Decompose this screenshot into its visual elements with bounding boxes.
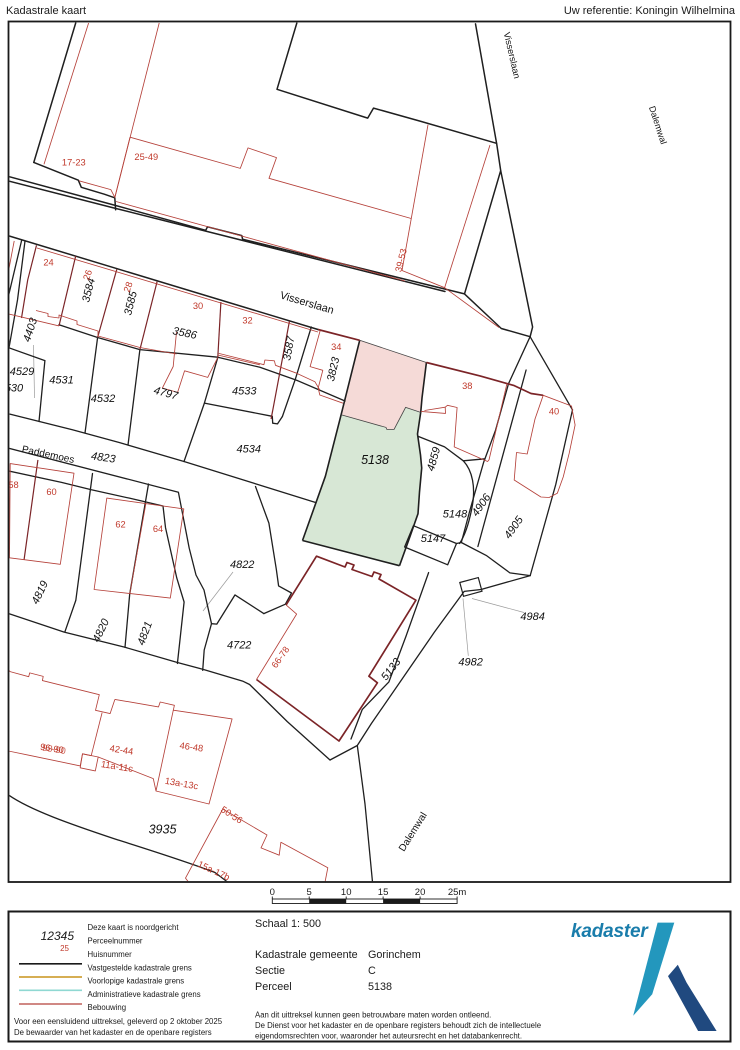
svg-text:34: 34 bbox=[331, 342, 341, 352]
svg-text:Gorinchem: Gorinchem bbox=[368, 949, 421, 961]
svg-text:5138: 5138 bbox=[368, 981, 392, 993]
svg-text:38: 38 bbox=[462, 381, 472, 391]
svg-text:25: 25 bbox=[60, 944, 69, 953]
svg-text:4722: 4722 bbox=[227, 640, 251, 652]
svg-text:Bebouwing: Bebouwing bbox=[88, 1003, 127, 1012]
svg-text:62: 62 bbox=[115, 520, 125, 530]
svg-text:30: 30 bbox=[193, 301, 203, 311]
svg-text:kadaster: kadaster bbox=[571, 921, 649, 942]
svg-text:De Dienst voor het kadaster en: De Dienst voor het kadaster en de openba… bbox=[255, 1021, 541, 1030]
svg-text:4984: 4984 bbox=[520, 611, 544, 623]
svg-text:De bewaarder van het kadaster: De bewaarder van het kadaster en de open… bbox=[14, 1028, 212, 1037]
svg-text:Vastgestelde kadastrale grens: Vastgestelde kadastrale grens bbox=[88, 963, 192, 972]
svg-text:4532: 4532 bbox=[91, 393, 115, 405]
svg-text:5147: 5147 bbox=[421, 533, 446, 545]
svg-text:Kadastrale kaart: Kadastrale kaart bbox=[6, 5, 86, 17]
svg-text:Administratieve kadastrale gre: Administratieve kadastrale grens bbox=[88, 990, 201, 999]
svg-text:4531: 4531 bbox=[49, 375, 73, 387]
svg-text:64: 64 bbox=[153, 524, 163, 534]
svg-text:Sectie: Sectie bbox=[255, 965, 285, 977]
svg-text:25-49: 25-49 bbox=[134, 152, 158, 162]
svg-text:32: 32 bbox=[242, 316, 252, 326]
svg-text:3935: 3935 bbox=[149, 823, 177, 837]
svg-text:40: 40 bbox=[549, 407, 559, 417]
svg-text:10: 10 bbox=[341, 887, 352, 898]
svg-text:Uw referentie: Koningin Wilhel: Uw referentie: Koningin Wilhelmina bbox=[564, 5, 736, 17]
svg-text:5148: 5148 bbox=[443, 509, 468, 521]
svg-text:12345: 12345 bbox=[41, 929, 75, 943]
svg-text:Kadastrale gemeente: Kadastrale gemeente bbox=[255, 949, 358, 961]
svg-text:Voorlopige kadastrale grens: Voorlopige kadastrale grens bbox=[88, 977, 185, 986]
svg-text:Aan dit uittreksel kunnen geen: Aan dit uittreksel kunnen geen betrouwba… bbox=[255, 1011, 491, 1020]
svg-text:20: 20 bbox=[415, 887, 426, 898]
svg-text:Schaal 1: 500: Schaal 1: 500 bbox=[255, 918, 321, 930]
svg-text:4534: 4534 bbox=[237, 444, 261, 456]
svg-text:eigendomsrechten voor, waarond: eigendomsrechten voor, waaronder het aut… bbox=[255, 1032, 522, 1041]
svg-text:Deze kaart is noordgericht: Deze kaart is noordgericht bbox=[88, 923, 180, 932]
svg-text:4533: 4533 bbox=[232, 385, 257, 397]
svg-text:Voor een eensluidend uittrekse: Voor een eensluidend uittreksel, gelever… bbox=[14, 1017, 223, 1026]
svg-text:0: 0 bbox=[270, 887, 275, 898]
svg-text:5: 5 bbox=[307, 887, 312, 898]
svg-text:25m: 25m bbox=[448, 887, 467, 898]
svg-text:4982: 4982 bbox=[458, 657, 482, 669]
svg-text:Huisnummer: Huisnummer bbox=[88, 950, 133, 959]
svg-text:24: 24 bbox=[43, 258, 53, 268]
svg-text:60: 60 bbox=[46, 487, 56, 497]
svg-text:15: 15 bbox=[378, 887, 389, 898]
svg-text:4822: 4822 bbox=[230, 559, 254, 571]
svg-text:5138: 5138 bbox=[361, 453, 389, 467]
svg-text:Perceel: Perceel bbox=[255, 981, 292, 993]
svg-text:C: C bbox=[368, 965, 376, 977]
svg-text:58: 58 bbox=[8, 480, 18, 490]
svg-text:4529: 4529 bbox=[10, 366, 34, 378]
svg-text:17-23: 17-23 bbox=[62, 158, 86, 168]
svg-text:Perceelnummer: Perceelnummer bbox=[88, 937, 143, 946]
